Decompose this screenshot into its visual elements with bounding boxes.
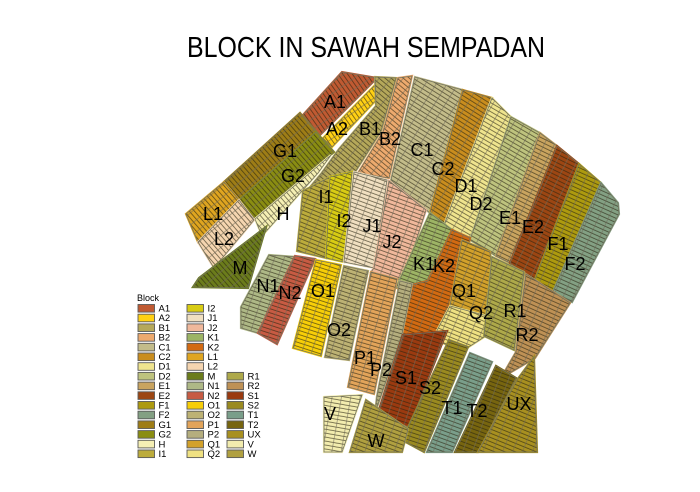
svg-text:BLOCK IN SAWAH SEMPADAN: BLOCK IN SAWAH SEMPADAN — [187, 32, 545, 64]
svg-text:J2: J2 — [382, 232, 401, 252]
svg-text:R2: R2 — [515, 325, 538, 345]
svg-text:A2: A2 — [326, 119, 348, 139]
svg-text:K1: K1 — [413, 254, 435, 274]
svg-text:F1: F1 — [547, 234, 568, 254]
svg-text:D2: D2 — [469, 194, 492, 214]
svg-text:L2: L2 — [214, 229, 234, 249]
svg-text:V: V — [324, 404, 336, 424]
svg-text:E2: E2 — [522, 217, 544, 237]
svg-text:Q2: Q2 — [208, 449, 221, 460]
svg-text:F2: F2 — [564, 254, 585, 274]
svg-text:C2: C2 — [431, 159, 454, 179]
svg-text:J1: J1 — [362, 216, 381, 236]
svg-text:UX: UX — [506, 394, 531, 414]
svg-text:H: H — [277, 204, 290, 224]
svg-text:S1: S1 — [395, 368, 417, 388]
svg-text:M: M — [233, 258, 248, 278]
svg-text:N1: N1 — [256, 276, 279, 296]
svg-text:G1: G1 — [273, 141, 297, 161]
svg-text:O2: O2 — [327, 320, 351, 340]
svg-text:I1: I1 — [159, 449, 167, 460]
svg-text:L1: L1 — [203, 204, 223, 224]
svg-text:T1: T1 — [441, 398, 462, 418]
svg-text:B2: B2 — [379, 129, 401, 149]
svg-text:S2: S2 — [419, 378, 441, 398]
svg-text:O1: O1 — [311, 281, 335, 301]
svg-text:D1: D1 — [454, 176, 477, 196]
svg-text:R1: R1 — [503, 301, 526, 321]
svg-text:E1: E1 — [499, 208, 521, 228]
svg-text:I2: I2 — [336, 211, 351, 231]
svg-text:Block: Block — [137, 293, 160, 303]
svg-text:A1: A1 — [324, 92, 346, 112]
svg-text:K2: K2 — [433, 256, 455, 276]
svg-text:Q1: Q1 — [452, 281, 476, 301]
svg-text:W: W — [248, 449, 257, 460]
svg-text:G2: G2 — [281, 166, 305, 186]
svg-text:I1: I1 — [318, 187, 333, 207]
svg-text:Q2: Q2 — [469, 303, 493, 323]
svg-text:B1: B1 — [359, 119, 381, 139]
svg-text:W: W — [368, 431, 385, 451]
svg-text:P2: P2 — [370, 360, 392, 380]
svg-text:N2: N2 — [278, 283, 301, 303]
svg-text:C1: C1 — [410, 140, 433, 160]
svg-text:T2: T2 — [466, 401, 487, 421]
